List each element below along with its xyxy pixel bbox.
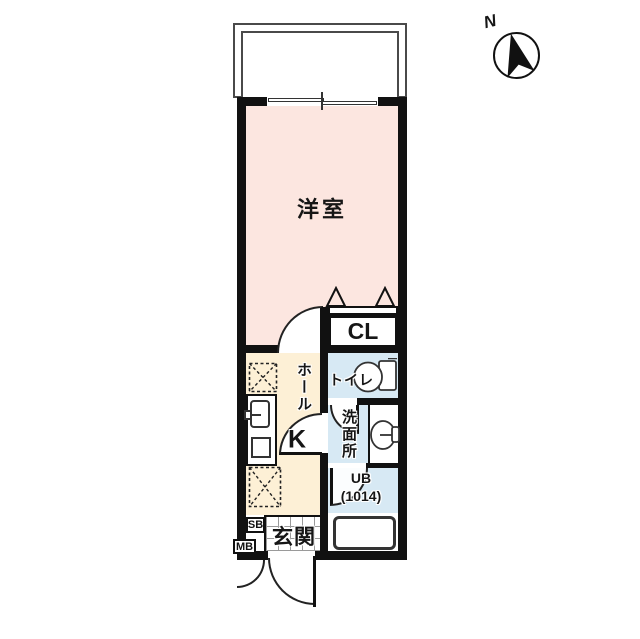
hall-label: ホール: [293, 362, 314, 413]
refrigerator-space-icon: [248, 362, 278, 393]
unit-bath-label: UB: [351, 470, 371, 486]
wall-washroom-bath: [366, 463, 398, 468]
closet-label: CL: [348, 318, 379, 345]
north-label: N: [482, 11, 499, 33]
entrance-door-swing: [268, 558, 315, 605]
window-pane-right: [321, 101, 377, 105]
meter-box-label: MB: [236, 541, 253, 553]
window-pane-left: [268, 98, 324, 102]
closet-room: CL: [328, 315, 398, 348]
unit-bath-size-label: (1014): [341, 488, 381, 504]
entrance-label: 玄関: [272, 521, 316, 551]
western-room-label: 洋室: [297, 192, 347, 224]
washbasin-icon: [368, 414, 402, 454]
entrance-door-leaf: [313, 556, 316, 607]
floor-plan: CL SB MB 洋室 トイレ: [0, 0, 640, 639]
kitchen-stove: [251, 437, 271, 458]
compass-needle-icon: [497, 30, 539, 82]
closet-track: [328, 306, 398, 315]
toilet-label: トイレ: [329, 370, 374, 390]
wall-under-closet: [328, 348, 398, 353]
shoe-box: SB: [246, 517, 265, 533]
folding-door-icon: [325, 286, 347, 308]
washer-space-icon: [248, 466, 282, 508]
folding-door-icon: [374, 286, 396, 308]
washroom-label: 洗面所: [338, 409, 359, 460]
kitchen-faucet-icon: [244, 410, 252, 420]
shoe-box-label: SB: [248, 519, 263, 531]
kitchen-faucet-spout: [252, 414, 261, 416]
wall-toilet-washroom: [357, 398, 398, 405]
wall-mid-vertical-lower: [320, 453, 328, 551]
window-center-tick: [321, 92, 323, 110]
kitchen-label: K: [288, 426, 306, 455]
meter-box-door-swing: [237, 560, 265, 588]
bathtub: [333, 516, 396, 550]
meter-box: MB: [233, 539, 256, 554]
balcony-inner-line: [241, 31, 399, 98]
